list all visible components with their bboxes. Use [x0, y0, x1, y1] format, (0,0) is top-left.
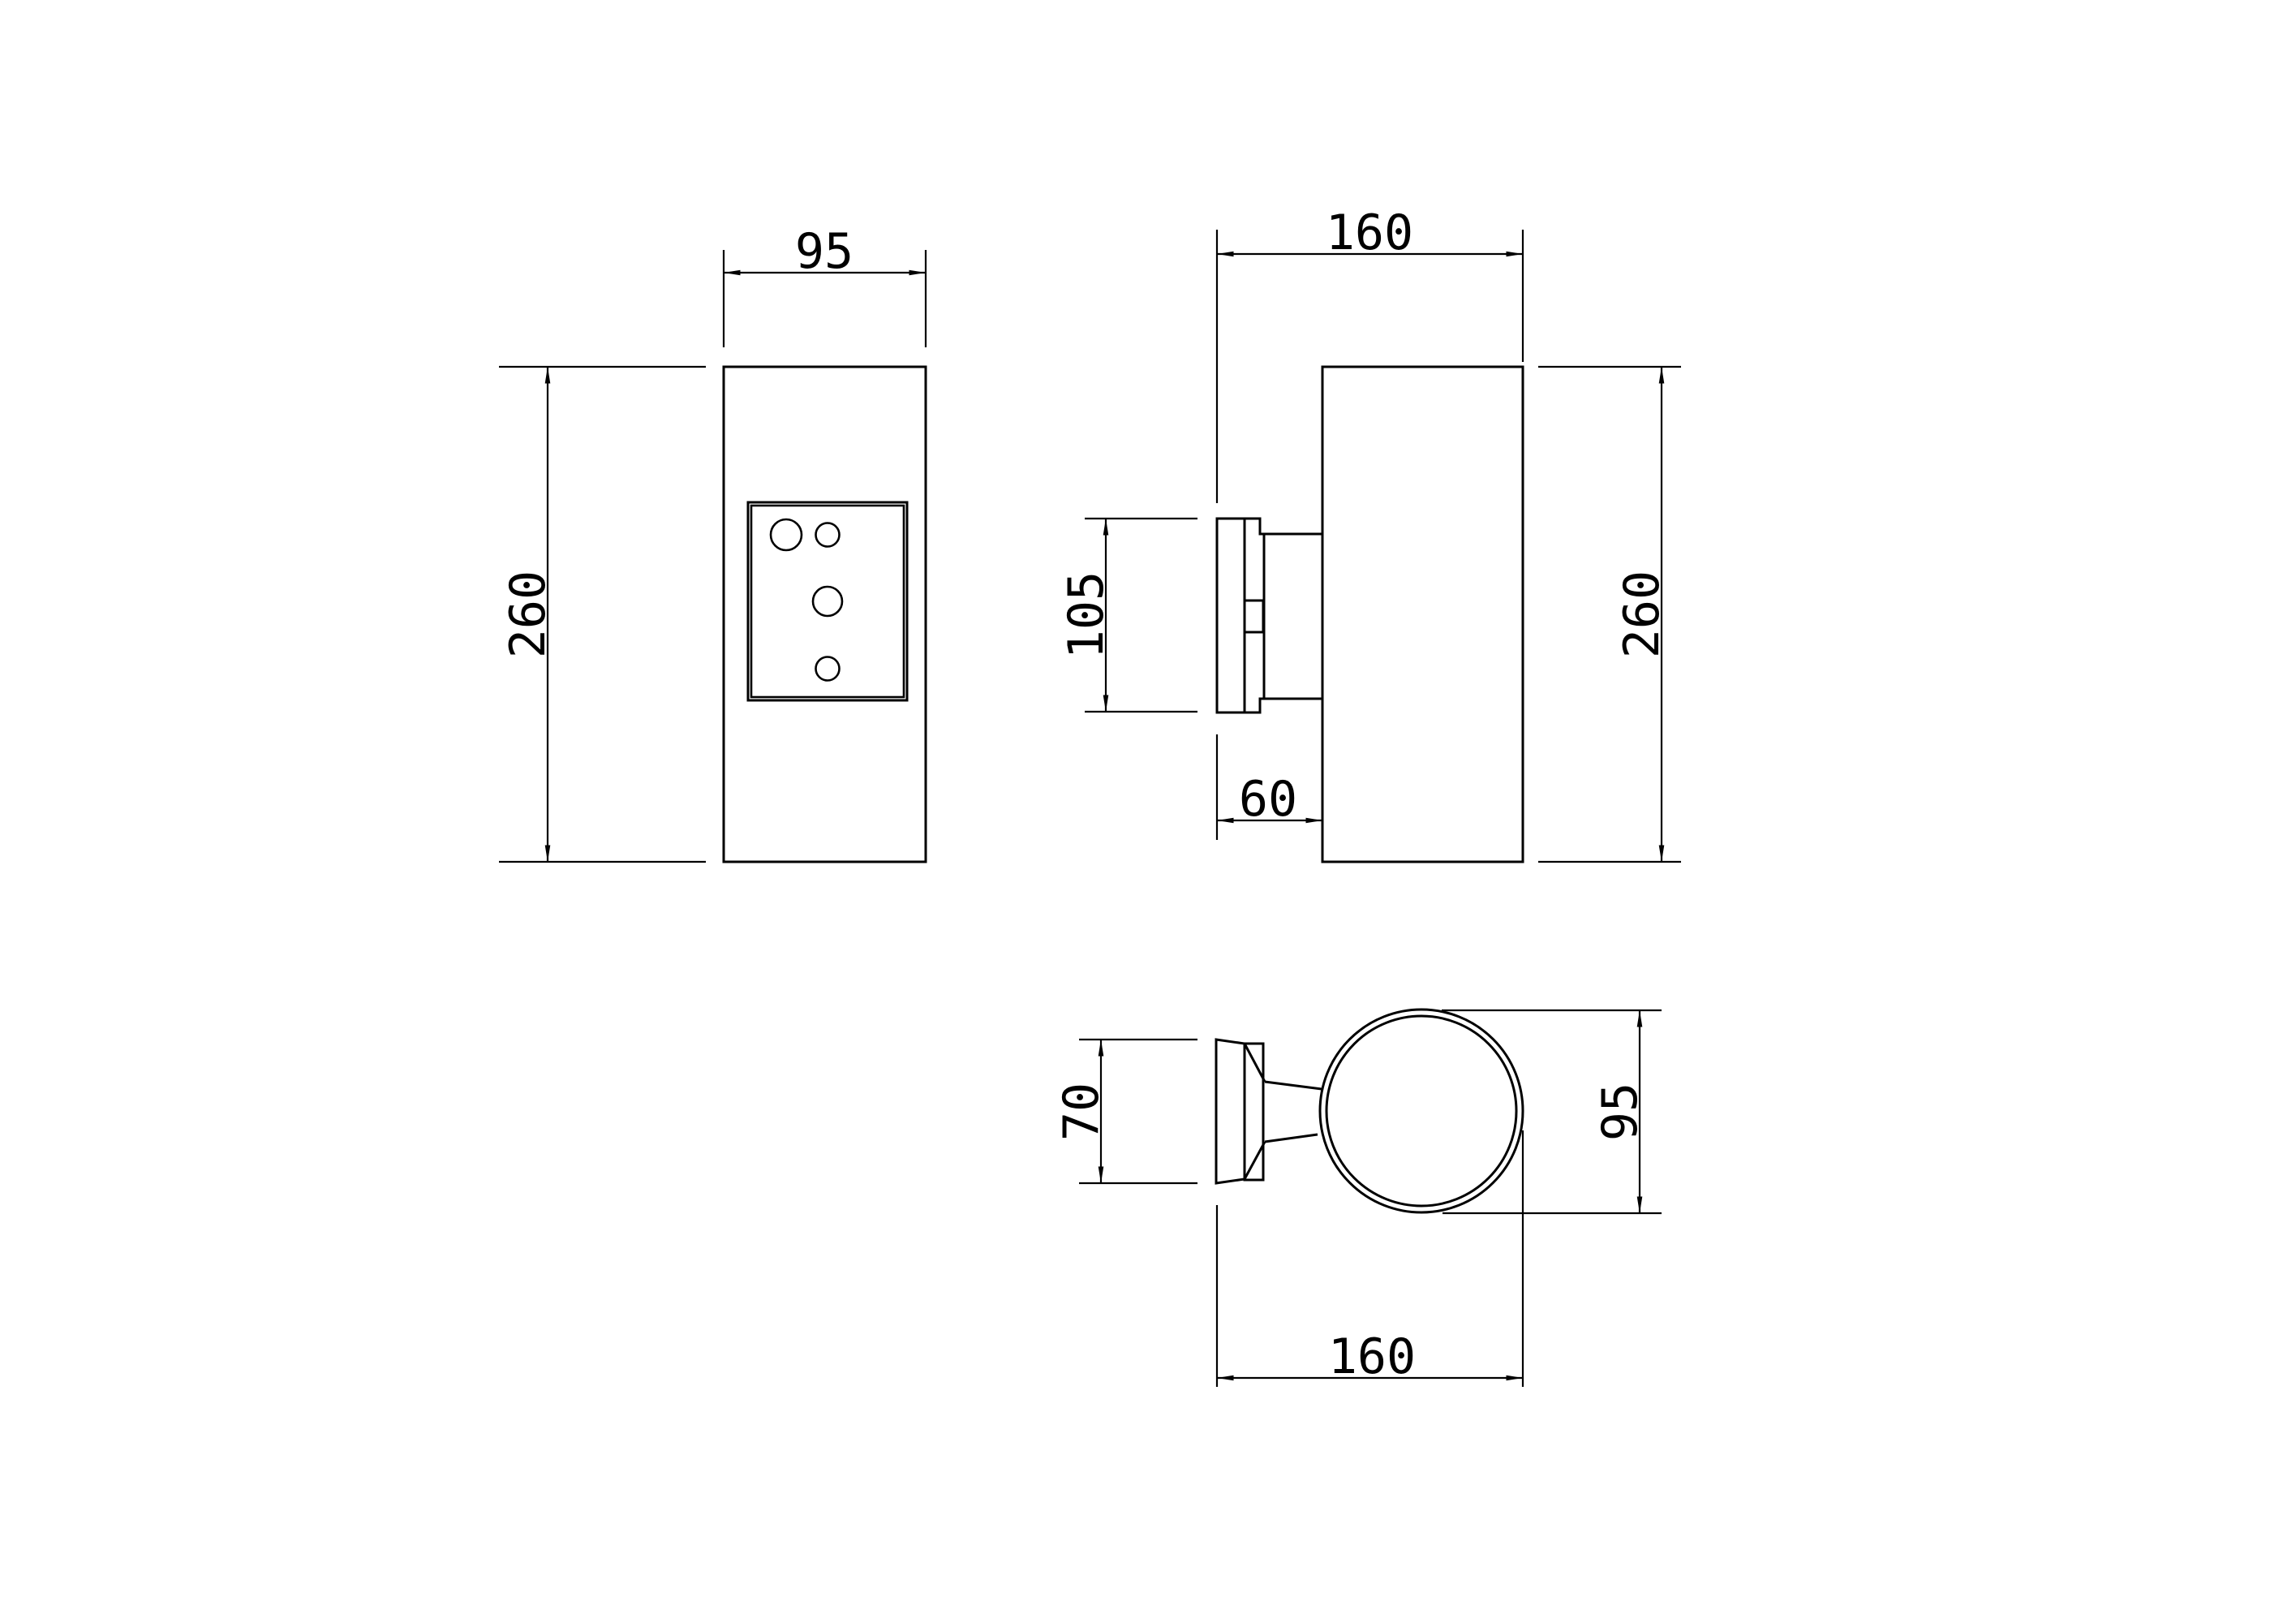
top-plate-bevel-bottom [1245, 1142, 1265, 1179]
dim-side-plate-height: 105 [1058, 519, 1197, 712]
dim-top-depth-label: 160 [1328, 1328, 1416, 1385]
side-mount-clip [1245, 601, 1263, 632]
dim-side-height-label: 260 [1614, 570, 1670, 658]
dim-front-width: 95 [724, 223, 926, 347]
dim-top-diameter: 95 [1442, 1010, 1662, 1213]
top-neck-bottom [1265, 1134, 1318, 1142]
drawing-sheet: 95 260 160 105 60 260 70 [0, 0, 2296, 1623]
front-faceplate-inner [751, 506, 904, 697]
front-hole-medium [813, 587, 842, 616]
dim-top-diameter-label: 95 [1592, 1083, 1649, 1141]
top-wall-plate-back [1216, 1040, 1245, 1183]
dim-front-height-label: 260 [500, 570, 557, 658]
top-body-circle-inner [1326, 1016, 1516, 1206]
dim-side-plate-depth-label: 60 [1239, 771, 1297, 828]
front-hole-small-bottom [816, 657, 840, 681]
dim-front-width-label: 95 [795, 223, 853, 280]
front-body-outline [724, 367, 926, 862]
dim-side-plate-depth: 60 [1217, 734, 1322, 840]
side-wall-plate-outline [1217, 519, 1264, 712]
side-mount-cup [1264, 534, 1322, 699]
dim-side-plate-height-label: 105 [1058, 571, 1115, 659]
dim-side-depth: 160 [1217, 204, 1523, 503]
front-view [724, 367, 926, 862]
dim-top-plate-width: 70 [1053, 1040, 1197, 1183]
front-hole-small-top [816, 523, 840, 547]
top-view [1216, 1010, 1523, 1212]
technical-drawing-canvas: 95 260 160 105 60 260 70 [0, 0, 2296, 1623]
top-body-circle-outer [1320, 1010, 1523, 1212]
top-neck-top [1265, 1082, 1322, 1089]
dim-side-height: 260 [1538, 367, 1681, 862]
dim-front-height: 260 [499, 367, 706, 862]
top-plate-bevel-top [1245, 1044, 1265, 1082]
front-hole-large [771, 519, 802, 550]
side-body-outline [1322, 367, 1523, 862]
dim-side-depth-label: 160 [1326, 204, 1413, 261]
dim-top-plate-width-label: 70 [1053, 1083, 1110, 1141]
